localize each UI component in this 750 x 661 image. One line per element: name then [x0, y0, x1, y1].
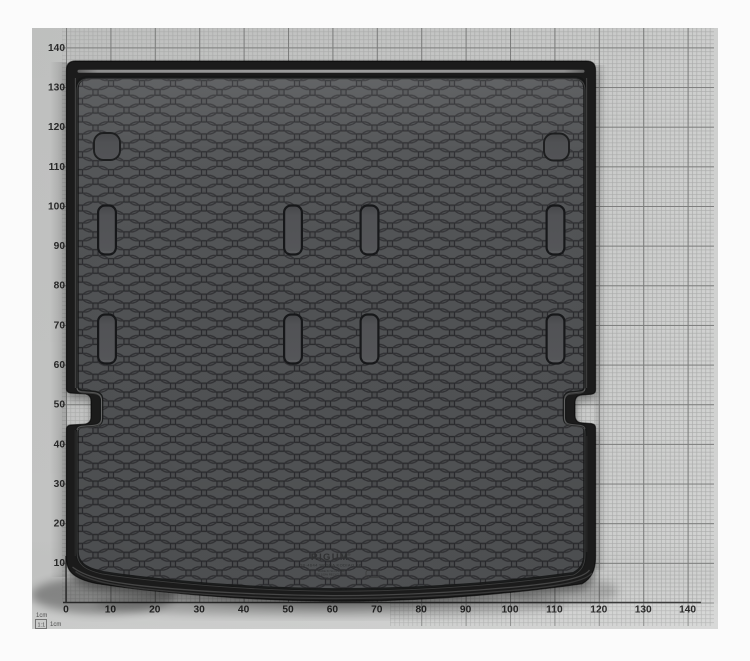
svg-text:PAT. PEND.: PAT. PEND. — [324, 576, 339, 580]
svg-text:1cm: 1cm — [36, 613, 47, 619]
svg-text:140: 140 — [679, 605, 696, 616]
svg-text:1:1: 1:1 — [38, 622, 46, 628]
svg-text:130: 130 — [635, 605, 652, 616]
svg-text:®: ® — [348, 552, 351, 557]
svg-text:140: 140 — [48, 43, 65, 54]
svg-text:30-4644 SKODA KODIAQ 5P: 30-4644 SKODA KODIAQ 5P — [300, 563, 361, 568]
svg-text:120: 120 — [590, 605, 607, 616]
svg-text:RIGUM: RIGUM — [311, 552, 349, 563]
svg-text:1cm: 1cm — [50, 622, 61, 628]
